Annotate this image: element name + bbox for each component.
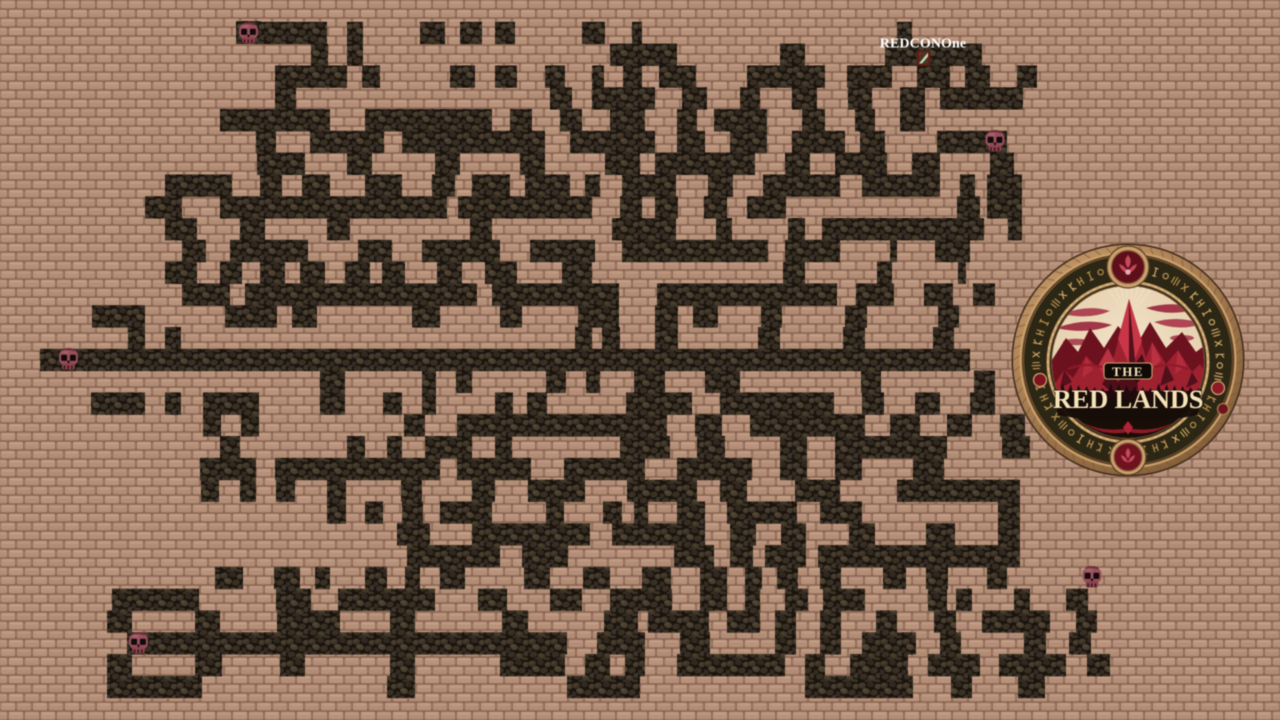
svg-text:THE: THE xyxy=(1112,364,1144,379)
svg-text:RED LANDS: RED LANDS xyxy=(1053,384,1204,414)
svg-text:REDCONOne: REDCONOne xyxy=(880,37,966,52)
